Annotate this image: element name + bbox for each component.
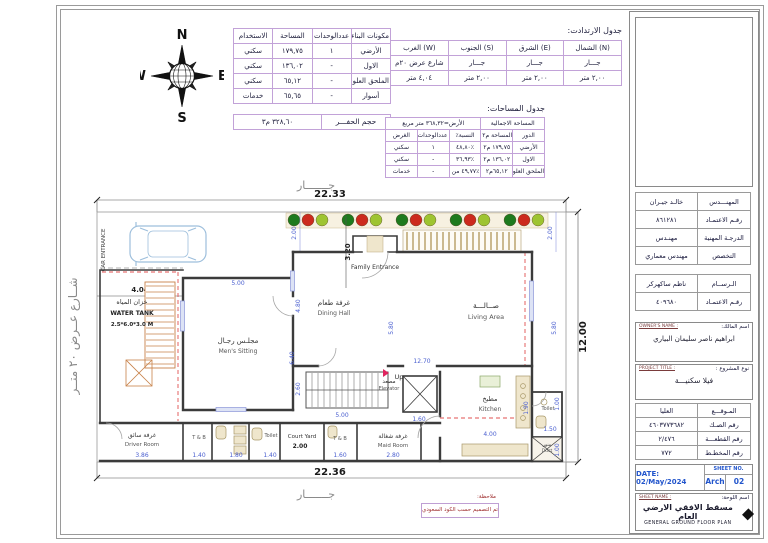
title-block-row: مهندس معماريالتخصص: [636, 247, 751, 265]
svg-text:1.60: 1.60: [333, 452, 347, 459]
table-cell: المـوقـــع: [698, 404, 751, 418]
table-cell: المساحة م٢: [481, 130, 513, 142]
living-label-en: Living Area: [468, 313, 504, 321]
svg-text:1.40: 1.40: [192, 452, 206, 459]
floor-plan: جـــــــار جـــــــار شــارع عــرض ٢٠ مت…: [66, 176, 624, 510]
svg-text:2.80: 2.80: [386, 452, 400, 459]
table-cell: الدرجـة المهنية: [698, 229, 751, 247]
table-row: الاول١٣٦,٠٢ م٢٪٣٦,٩٣-سكني: [386, 154, 545, 166]
sheet-name-en: GENERAL GROUND FLOOR PLAN: [636, 521, 740, 526]
sheet-name-ar: مسقط الافقي الارضي العام: [636, 503, 740, 521]
tree-icon: [302, 214, 314, 226]
project-title: فيلا سكنيـــة: [636, 376, 752, 385]
table-cell: سكني: [234, 59, 273, 74]
table-cell: ٨٦١٢٨١: [636, 211, 698, 229]
svg-text:4.00: 4.00: [483, 431, 497, 438]
elevator: [403, 376, 437, 412]
svg-text:3.86: 3.86: [135, 452, 149, 459]
sheet-name-box: SHEET NAME : اسم اللوحة: مسقط الافقي الا…: [635, 493, 753, 531]
project-label-ar: نوع المشروع :: [716, 366, 749, 372]
maid-label-ar: غرفة شغالة: [378, 433, 407, 440]
maid-label-en: Maid Room: [378, 443, 409, 449]
table-row: الأرضي١٧٩,٧٥ م٢٪٤٨,٨٠١سكني: [386, 142, 545, 154]
tree-icon: [342, 214, 354, 226]
table-cell: الأرضي: [351, 44, 390, 59]
components-table: مكونات البناءعددالوحداتالمساحةالاستخدام …: [233, 28, 391, 104]
table-cell: جـــار: [506, 56, 564, 71]
dim-setback-right: 2.00: [547, 226, 554, 240]
family-entrance-label: Family Entrance: [351, 264, 399, 271]
table-cell: ٦٥,٦٥: [273, 89, 312, 104]
svg-text:2.60: 2.60: [295, 382, 302, 396]
title-block-row: ٤٦٠٣٧٧٣٦٨٢رقم الصـك: [636, 418, 751, 432]
table-cell: ١: [312, 44, 351, 59]
table-cell: جـــار: [564, 56, 622, 71]
table-cell: الاستخدام: [234, 29, 273, 44]
setbacks-table: (N) الشمال(E) الشرق(S) الجنوب(W) الغرب ج…: [390, 40, 622, 86]
table-cell: ٤,٠٤ متر: [391, 71, 449, 86]
table-cell: ٢,٠٠ متر: [506, 71, 564, 86]
tree-icon: [464, 214, 476, 226]
areas-total-value: الأرض=٣٦٨,٣٢ متر مربع: [386, 118, 481, 130]
tree-icon: [532, 214, 544, 226]
table-cell: الأرضي: [513, 142, 545, 154]
table-cell: المساحة: [273, 29, 312, 44]
title-block-row: خالـد جيـرانالمهنـــدس: [636, 193, 751, 211]
svg-text:1.50: 1.50: [543, 426, 557, 433]
table-cell: سكني: [234, 74, 273, 89]
tb1-label: T & B: [191, 435, 206, 441]
kitchen-label-ar: مطبخ: [483, 395, 498, 403]
stairs-up-label: Up: [395, 373, 404, 381]
elevator-label-ar: مصعد: [382, 379, 395, 385]
table-cell: ٦٥,١٢: [273, 74, 312, 89]
duct-label-en: Duct: [542, 448, 553, 454]
table-cell: ١٣٦,٠٢ م٢: [481, 154, 513, 166]
tree-icon: [396, 214, 408, 226]
title-block-panel: خالـد جيـرانالمهنـــدس٨٦١٢٨١رقـم الاعتمـ…: [629, 11, 759, 534]
water-tank-size: 2.5*6.0*3.0 M: [111, 322, 153, 328]
car-entrance-label: CAR ENTRANCE: [101, 228, 107, 271]
table-cell: ٤٠٩٦٨٠: [636, 293, 698, 311]
table-cell: رقم المخطـط: [698, 446, 751, 460]
owner-box: OWNER'S NAME : اسم المالك: ابراهيم ناصر …: [635, 322, 753, 362]
table-cell: ١: [417, 142, 449, 154]
table-cell: رقم القطعـــة: [698, 432, 751, 446]
date-sheet-box: DATE: 02/May/2024 SHEET NO. Arch 02: [635, 464, 753, 491]
table-cell: (N) الشمال: [564, 41, 622, 56]
toilet1-label: Toilet: [263, 433, 277, 439]
tank-x-box: [126, 360, 152, 386]
note-label: ملاحظة:: [452, 494, 496, 500]
svg-text:1.00: 1.00: [554, 397, 561, 411]
sheet-no-prefix: Arch: [705, 475, 726, 490]
water-tank-label-ar: خزان المياه: [116, 298, 147, 306]
table-cell: الاول: [513, 154, 545, 166]
owner-tag-en: OWNER'S NAME :: [639, 324, 678, 330]
driver-label-en: Driver Room: [125, 442, 159, 448]
compass-n: N: [177, 28, 188, 43]
table-row: الأرضي١١٧٩,٧٥سكني: [234, 44, 391, 59]
table-cell: خدمات: [234, 89, 273, 104]
table-cell: عددالوحدات: [312, 29, 351, 44]
excavation-label: حجم الحفـــر: [322, 115, 391, 130]
tree-icon: [410, 214, 422, 226]
duct-label-ar: منور: [542, 443, 552, 448]
table-cell: ٢,٠٠ متر: [448, 71, 506, 86]
table-cell: ٧٧٢: [636, 446, 698, 460]
table-cell: النسبة٪: [449, 130, 481, 142]
table-cell: سكني: [386, 142, 418, 154]
table-row: الملحق العلوي-٦٥,١٢سكني: [234, 74, 391, 89]
table-cell: الدور: [513, 130, 545, 142]
tree-icon: [288, 214, 300, 226]
tree-icon: [518, 214, 530, 226]
table-cell: رقـم الاعتمـاد: [698, 211, 751, 229]
title-block-row: ناظم ساكهركرالـرســام: [636, 275, 751, 293]
table-row: جـــارجـــارجـــارشارع عرض ٢٠م: [391, 56, 622, 71]
dim-top: 22.33: [314, 189, 346, 200]
table-cell: ٪٤٨,٨٠: [449, 142, 481, 154]
project-tag-en: PROJECT TITLE :: [639, 366, 675, 372]
setbacks-title: جدول الارتدادت:: [480, 26, 622, 35]
street-label: شــارع عــرض ٢٠ متــر: [66, 277, 81, 395]
site-table: العلياالمـوقـــع٤٦٠٣٧٧٣٦٨٢رقم الصـك٢/٤٧٦…: [635, 403, 751, 460]
tree-icon: [450, 214, 462, 226]
table-cell: الـرســام: [698, 275, 751, 293]
areas-table: المساحة الاجمالية الأرض=٣٦٨,٣٢ متر مربع …: [385, 117, 545, 178]
sheet-no-number: 02: [726, 475, 752, 490]
court-label: Court Yard: [288, 434, 317, 440]
title-block-row: ٤٠٩٦٨٠رقـم الاعتمـاد: [636, 293, 751, 311]
tree-icons: [288, 214, 544, 226]
table-cell: ٤٦٠٣٧٧٣٦٨٢: [636, 418, 698, 432]
svg-text:1.00: 1.00: [554, 443, 561, 457]
svg-text:5.00: 5.00: [231, 280, 245, 287]
svg-text:4.80: 4.80: [295, 299, 302, 313]
title-block-row: مهنـدسالدرجـة المهنية: [636, 229, 751, 247]
table-cell: العليا: [636, 404, 698, 418]
title-block-row: ٨٦١٢٨١رقـم الاعتمـاد: [636, 211, 751, 229]
svg-text:12.70: 12.70: [413, 358, 430, 365]
compass-rose-icon: N S E W: [140, 22, 224, 126]
table-cell: ٢,٠٠ متر: [564, 71, 622, 86]
table-row: ٢,٠٠ متر٢,٠٠ متر٢,٠٠ متر٤,٠٤ متر: [391, 71, 622, 86]
driver-label-ar: غرفة سائق: [128, 432, 156, 439]
areas-title: جدول المساحات:: [430, 104, 545, 113]
sheet-no-label: SHEET NO.: [705, 465, 752, 475]
authority-logo-box: [635, 17, 753, 187]
table-cell: جـــار: [448, 56, 506, 71]
table-cell: ٪٣٦,٩٣: [449, 154, 481, 166]
compass-s: S: [177, 111, 186, 126]
drawing-sheet: N S E W مكونات البناءعددالوحداتالمساحةال…: [0, 0, 768, 543]
date-value: DATE: 02/May/2024: [636, 470, 704, 486]
title-block-row: العلياالمـوقـــع: [636, 404, 751, 418]
table-cell: -: [312, 59, 351, 74]
car-icon: [130, 222, 206, 266]
tree-icon: [370, 214, 382, 226]
sheet-name-tag-en: SHEET NAME :: [639, 495, 671, 501]
svg-text:5.00: 5.00: [335, 412, 349, 419]
table-cell: عددالوحدات: [417, 130, 449, 142]
svg-text:5.80: 5.80: [388, 321, 395, 335]
svg-text:6.40: 6.40: [289, 351, 296, 365]
living-label-ar: صــالـــة: [473, 301, 499, 310]
title-block-row: ٢/٤٧٦رقم القطعـــة: [636, 432, 751, 446]
mens-sitting-label-ar: مجلـس رجـال: [218, 337, 259, 345]
table-cell: (W) الغرب: [391, 41, 449, 56]
table-cell: الملحق العلوي: [351, 74, 390, 89]
staircase: [306, 369, 389, 408]
tb2-label: T & B: [332, 436, 347, 442]
table-row: الاول-١٣٦,٠٢سكني: [234, 59, 391, 74]
svg-text:5.80: 5.80: [551, 321, 558, 335]
table-cell: (S) الجنوب: [448, 41, 506, 56]
table-cell: ١٧٩,٧٥: [273, 44, 312, 59]
title-block-row: ٧٧٢رقم المخطـط: [636, 446, 751, 460]
kitchen-label-en: Kitchen: [479, 406, 502, 413]
table-cell: رقم الصـك: [698, 418, 751, 432]
dim-right: 12.00: [578, 321, 589, 353]
table-cell: مهندس معماري: [636, 247, 698, 265]
owner-label-ar: اسم المالك:: [721, 324, 749, 330]
table-cell: ناظم ساكهركر: [636, 275, 698, 293]
table-cell: مكونات البناء: [351, 29, 390, 44]
owner-name: ابراهيم ناصر سليمان البياري: [636, 335, 752, 343]
dim-setback-left: 2.00: [291, 226, 298, 240]
tree-icon: [316, 214, 328, 226]
sheet-name-label-ar: اسم اللوحة:: [721, 495, 749, 501]
svg-text:1.80: 1.80: [229, 452, 243, 459]
table-cell: التخصص: [698, 247, 751, 265]
table-cell: شارع عرض ٢٠م: [391, 56, 449, 71]
compass-w: W: [140, 69, 146, 84]
table-cell: خالـد جيـران: [636, 193, 698, 211]
drafter-table: ناظم ساكهركرالـرســام٤٠٩٦٨٠رقـم الاعتمـا…: [635, 274, 751, 311]
svg-text:1.40: 1.40: [263, 452, 277, 459]
table-row: أسوار-٦٥,٦٥خدمات: [234, 89, 391, 104]
tree-icon: [356, 214, 368, 226]
excavation-value: ٣٢٨,٦٠ م٣: [234, 115, 322, 130]
dim-court: 2.00: [293, 443, 308, 450]
table-cell: سكني: [234, 44, 273, 59]
table-cell: رقـم الاعتمـاد: [698, 293, 751, 311]
neighbor-bottom-label: جـــــــار: [296, 488, 335, 501]
table-cell: ٢/٤٧٦: [636, 432, 698, 446]
dining-label-en: Dining Hall: [318, 310, 351, 317]
compass-e: E: [218, 69, 224, 84]
table-cell: أسوار: [351, 89, 390, 104]
tree-icon: [504, 214, 516, 226]
svg-text:1.60: 1.60: [412, 416, 426, 423]
areas-total-label: المساحة الاجمالية: [481, 118, 545, 130]
table-cell: ١٧٩,٧٥ م٢: [481, 142, 513, 154]
excavation-table: حجم الحفـــر ٣٢٨,٦٠ م٣: [233, 114, 391, 130]
project-box: PROJECT TITLE : نوع المشروع : فيلا سكنيـ…: [635, 364, 753, 400]
note-box: تم التصميم حسب الكود السعودي: [421, 503, 499, 518]
table-cell: الاول: [351, 59, 390, 74]
engineer-table: خالـد جيـرانالمهنـــدس٨٦١٢٨١رقـم الاعتمـ…: [635, 192, 751, 265]
dining-label-ar: غرفة طعام: [318, 299, 351, 307]
firm-logo-icon: [742, 508, 754, 520]
mens-sitting-label-en: Men's Sitting: [219, 348, 258, 355]
table-cell: -: [417, 154, 449, 166]
table-cell: الغرض: [386, 130, 418, 142]
tree-icon: [424, 214, 436, 226]
table-cell: -: [312, 89, 351, 104]
svg-text:1.90: 1.90: [523, 401, 530, 415]
dim-bottom: 22.36: [314, 467, 346, 478]
table-cell: سكني: [386, 154, 418, 166]
water-tank-label-en: WATER TANK: [110, 310, 154, 317]
table-cell: -: [312, 74, 351, 89]
toilet2-label: Toilet: [540, 406, 554, 412]
table-cell: (E) الشرق: [506, 41, 564, 56]
table-cell: ١٣٦,٠٢: [273, 59, 312, 74]
kitchen-counters: [462, 376, 530, 456]
elevator-label-en: Elevator: [379, 386, 401, 392]
table-cell: مهنـدس: [636, 229, 698, 247]
tree-icon: [478, 214, 490, 226]
table-cell: المهنـــدس: [698, 193, 751, 211]
